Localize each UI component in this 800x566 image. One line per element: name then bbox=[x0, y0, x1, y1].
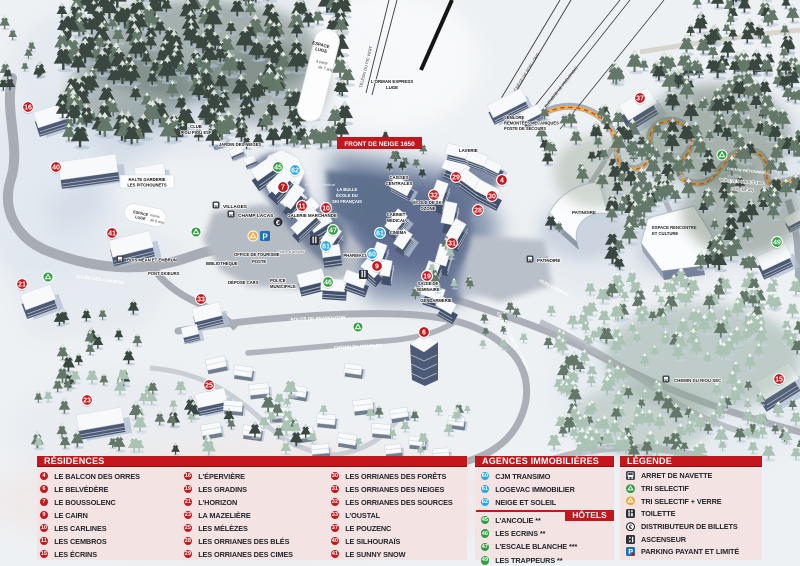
svg-text:VILLAGES: VILLAGES bbox=[223, 204, 248, 210]
svg-text:19: 19 bbox=[423, 273, 431, 280]
svg-text:OZONE: OZONE bbox=[421, 206, 436, 211]
svg-text:SÉMINAIRE: SÉMINAIRE bbox=[416, 287, 439, 292]
svg-text:28: 28 bbox=[474, 207, 482, 214]
svg-text:16: 16 bbox=[24, 104, 32, 111]
svg-text:ÉCOLE DE SKI: ÉCOLE DE SKI bbox=[413, 200, 443, 205]
svg-text:30: 30 bbox=[488, 193, 496, 200]
svg-text:BIBLIOTHÈQUE: BIBLIOTHÈQUE bbox=[206, 261, 238, 266]
svg-text:7: 7 bbox=[281, 184, 285, 191]
svg-text:CLUB: CLUB bbox=[190, 124, 202, 129]
svg-text:33: 33 bbox=[197, 296, 205, 303]
svg-text:CAISSES: CAISSES bbox=[389, 175, 408, 180]
svg-text:45: 45 bbox=[274, 164, 282, 171]
svg-text:CHEMIN DU RIOU SEC: CHEMIN DU RIOU SEC bbox=[674, 378, 722, 383]
svg-text:FRONT DE NEIGE 1650: FRONT DE NEIGE 1650 bbox=[344, 141, 415, 148]
svg-text:6: 6 bbox=[422, 329, 426, 336]
svg-text:23: 23 bbox=[83, 397, 91, 404]
svg-text:15: 15 bbox=[775, 376, 783, 383]
svg-text:POSTE: POSTE bbox=[252, 259, 266, 264]
svg-text:37: 37 bbox=[636, 95, 644, 102]
svg-text:€: € bbox=[276, 220, 280, 227]
svg-text:LUGE: LUGE bbox=[386, 85, 398, 90]
svg-text:GENDARMERIE: GENDARMERIE bbox=[420, 298, 452, 303]
svg-text:CHAMP LACAS: CHAMP LACAS bbox=[238, 213, 274, 219]
svg-text:ÉCOLE DU: ÉCOLE DU bbox=[336, 193, 358, 198]
svg-text:P: P bbox=[262, 233, 268, 242]
svg-text:PATINOIRE: PATINOIRE bbox=[537, 258, 560, 263]
svg-text:61: 61 bbox=[322, 243, 330, 250]
svg-text:60: 60 bbox=[368, 251, 376, 258]
svg-text:LAVERIE: LAVERIE bbox=[459, 148, 478, 153]
svg-text:11: 11 bbox=[298, 203, 306, 210]
svg-text:PATINOIRE: PATINOIRE bbox=[572, 210, 596, 215]
svg-text:47: 47 bbox=[329, 227, 337, 234]
svg-text:31: 31 bbox=[448, 240, 456, 247]
svg-text:POSTE DE SECOURS: POSTE DE SECOURS bbox=[504, 126, 546, 131]
svg-text:21: 21 bbox=[18, 281, 26, 288]
svg-text:REMONTÉES MÉCANIQUES: REMONTÉES MÉCANIQUES bbox=[504, 121, 559, 126]
svg-text:40: 40 bbox=[52, 164, 60, 171]
svg-text:CINÉMA: CINÉMA bbox=[390, 230, 407, 235]
svg-text:10: 10 bbox=[322, 205, 330, 212]
svg-text:DÉPOSE CARS: DÉPOSE CARS bbox=[228, 280, 259, 285]
svg-text:MUNICIPALE: MUNICIPALE bbox=[270, 284, 296, 289]
svg-text:LES PITCHOUNETS: LES PITCHOUNETS bbox=[127, 183, 167, 188]
svg-text:CABINET: CABINET bbox=[387, 212, 406, 217]
svg-text:Place du Festival: Place du Festival bbox=[305, 182, 336, 187]
svg-text:29: 29 bbox=[452, 174, 460, 181]
svg-text:62: 62 bbox=[291, 167, 299, 174]
svg-text:BOIS MÉAN ET EMBRUN: BOIS MÉAN ET EMBRUN bbox=[127, 258, 177, 263]
svg-text:PIOU PIOU ESF: PIOU PIOU ESF bbox=[181, 130, 212, 135]
svg-text:4: 4 bbox=[500, 177, 504, 184]
svg-text:ET CULTURE: ET CULTURE bbox=[652, 231, 678, 236]
svg-text:JARDIN DES NEIGES: JARDIN DES NEIGES bbox=[219, 142, 262, 147]
svg-text:L'ORMAN EXPRESS: L'ORMAN EXPRESS bbox=[371, 79, 413, 84]
svg-text:PONT SKIEURS: PONT SKIEURS bbox=[148, 271, 180, 276]
svg-text:46: 46 bbox=[324, 279, 332, 286]
svg-text:POLICE: POLICE bbox=[270, 278, 286, 283]
svg-text:LA BULLE: LA BULLE bbox=[337, 187, 358, 192]
svg-text:9: 9 bbox=[375, 263, 379, 270]
svg-text:CENTRALES: CENTRALES bbox=[386, 181, 413, 186]
svg-text:25: 25 bbox=[205, 382, 213, 389]
svg-text:MÉDICAL: MÉDICAL bbox=[386, 218, 406, 223]
svg-text:GALERIE MARCHANDE: GALERIE MARCHANDE bbox=[287, 213, 337, 218]
svg-text:32: 32 bbox=[430, 192, 438, 199]
svg-text:OFFICE DE TOURISME: OFFICE DE TOURISME bbox=[234, 252, 280, 257]
svg-text:SEMLORE: SEMLORE bbox=[504, 115, 525, 120]
svg-text:PHARMACIE: PHARMACIE bbox=[343, 253, 369, 258]
svg-text:61: 61 bbox=[376, 230, 384, 237]
svg-text:41: 41 bbox=[108, 230, 116, 237]
svg-text:49: 49 bbox=[773, 239, 781, 246]
svg-text:SKI FRANÇAIS: SKI FRANÇAIS bbox=[332, 199, 362, 204]
svg-text:HALTE GARDERIE: HALTE GARDERIE bbox=[129, 177, 166, 182]
svg-text:Place d'accueil: Place d'accueil bbox=[278, 249, 305, 254]
